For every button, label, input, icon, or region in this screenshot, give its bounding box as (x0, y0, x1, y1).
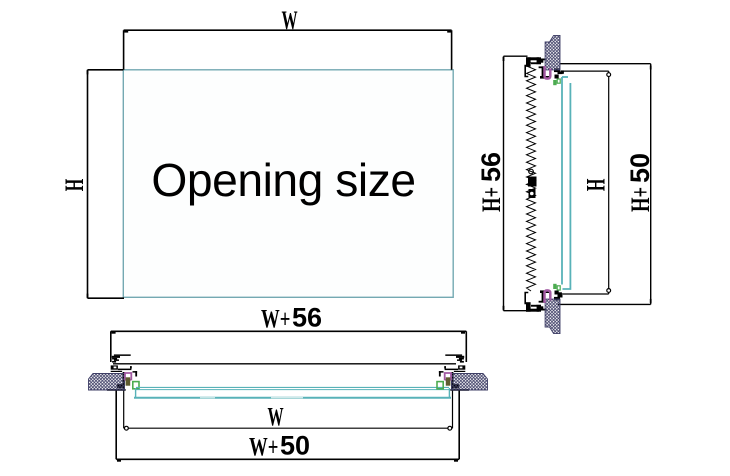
svg-text:50: 50 (625, 153, 655, 183)
svg-text:H: H (60, 179, 89, 192)
svg-text:H+: H+ (477, 187, 506, 212)
svg-text:H: H (582, 178, 611, 191)
svg-text:W+: W+ (249, 433, 278, 462)
svg-text:Opening size: Opening size (151, 154, 415, 206)
svg-text:56: 56 (292, 303, 322, 333)
svg-text:W: W (268, 403, 284, 432)
svg-text:56: 56 (476, 152, 506, 182)
svg-text:W+: W+ (261, 305, 290, 334)
svg-text:50: 50 (280, 431, 310, 461)
svg-text:W: W (282, 6, 298, 35)
svg-text:H+: H+ (626, 187, 655, 212)
